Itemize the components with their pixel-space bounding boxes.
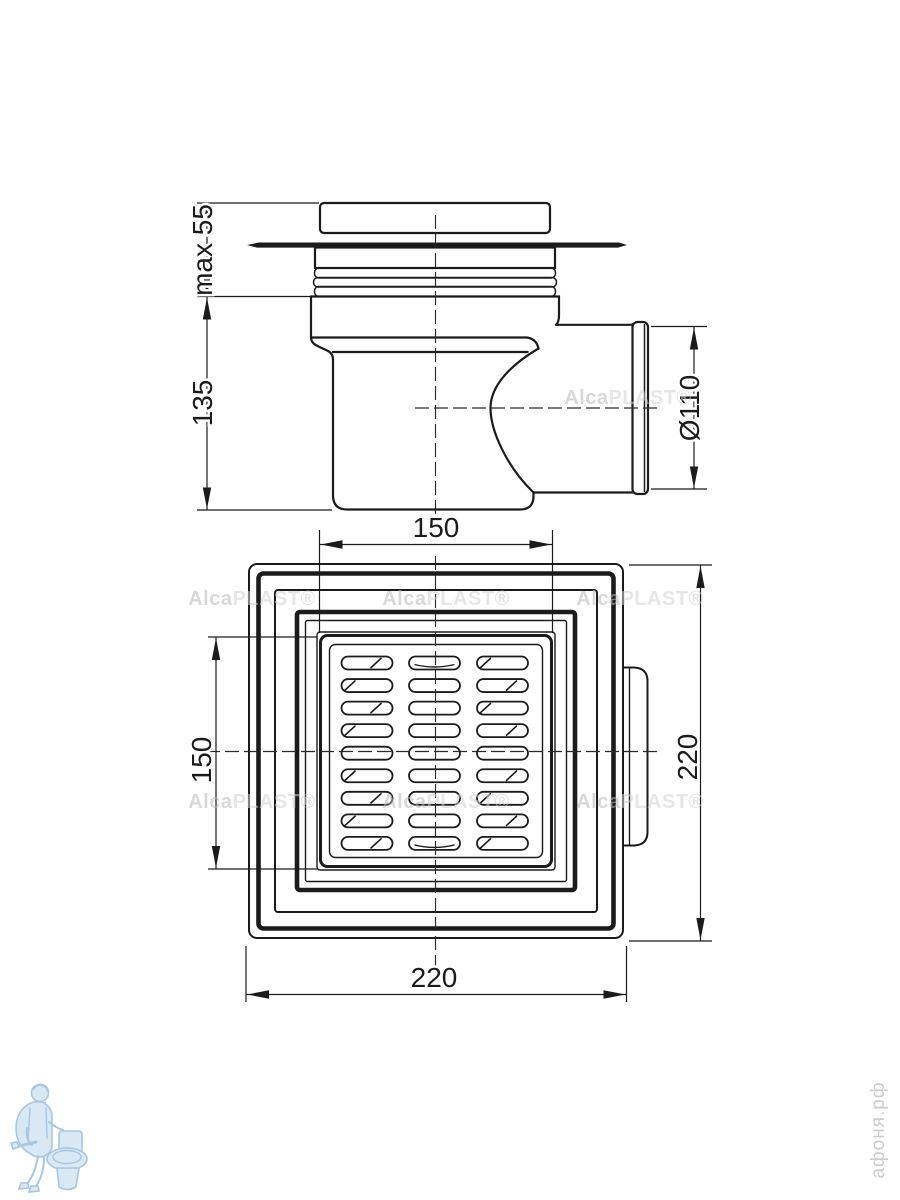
grate-slot <box>409 657 460 670</box>
grate-slot <box>342 657 393 670</box>
plumber-logo <box>11 1085 87 1193</box>
grate-slot <box>477 769 528 782</box>
grate-slot <box>477 837 528 850</box>
dimension-body-width-bottom: 220 <box>246 946 627 1002</box>
dim-max55-label: max 55 <box>187 204 218 296</box>
grate-slot <box>409 769 460 782</box>
grate-slot <box>409 724 460 737</box>
grate-slot <box>409 837 460 850</box>
grate-slot <box>342 702 393 715</box>
dimension-body-width-right: 220 <box>629 565 712 941</box>
alcaplast-watermark: AlcaPLAST® <box>188 588 316 610</box>
alcaplast-watermark: AlcaPLAST® <box>564 387 692 409</box>
grate-slot <box>409 679 460 692</box>
grate-slot <box>477 747 528 760</box>
grate-slot <box>477 702 528 715</box>
dim-220-right-label: 220 <box>672 734 703 781</box>
alcaplast-watermark: AlcaPLAST® <box>382 791 510 813</box>
grate-slot <box>409 814 460 827</box>
plumber-figure <box>11 1085 63 1193</box>
grate-slot <box>342 747 393 760</box>
alcaplast-watermark: AlcaPLAST® <box>382 588 510 610</box>
grate-slot <box>342 769 393 782</box>
grate-slot <box>342 814 393 827</box>
alcaplast-watermark: AlcaPLAST® <box>188 791 316 813</box>
grate-slot <box>342 837 393 850</box>
grate-slot <box>477 814 528 827</box>
grate-slot <box>342 679 393 692</box>
grate-slot <box>409 702 460 715</box>
grate-slot <box>477 657 528 670</box>
dimension-installation-height: max 55 <box>187 203 319 297</box>
drawing-page: max 55 135 Ø110 <box>0 0 900 1200</box>
grate-slot <box>409 747 460 760</box>
shoe <box>19 1183 29 1189</box>
toilet-icon <box>47 1131 87 1190</box>
site-watermark-text: афоня.рф <box>868 1081 889 1178</box>
grate-slot <box>342 724 393 737</box>
plan-view: 150 150 220 220 <box>186 512 712 1002</box>
grate-slot <box>477 724 528 737</box>
dim-135-label: 135 <box>187 380 218 427</box>
dim-150-top-label: 150 <box>413 512 460 543</box>
shoe <box>29 1186 39 1192</box>
dim-220-bottom-label: 220 <box>411 962 458 993</box>
alcaplast-watermark: AlcaPLAST® <box>576 791 704 813</box>
alcaplast-watermark: AlcaPLAST® <box>576 588 704 610</box>
side-view: max 55 135 Ø110 <box>187 203 707 517</box>
dim-150-left-label: 150 <box>186 737 217 784</box>
grate-slots <box>342 657 529 850</box>
technical-drawing: max 55 135 Ø110 <box>0 0 900 1200</box>
drain-body <box>311 297 559 510</box>
outlet-protrusion <box>623 668 648 846</box>
outlet-dome-curve <box>491 349 539 493</box>
grate-slot <box>477 679 528 692</box>
brand-watermarks: AlcaPLAST® AlcaPLAST® AlcaPLAST® AlcaPLA… <box>188 387 704 813</box>
